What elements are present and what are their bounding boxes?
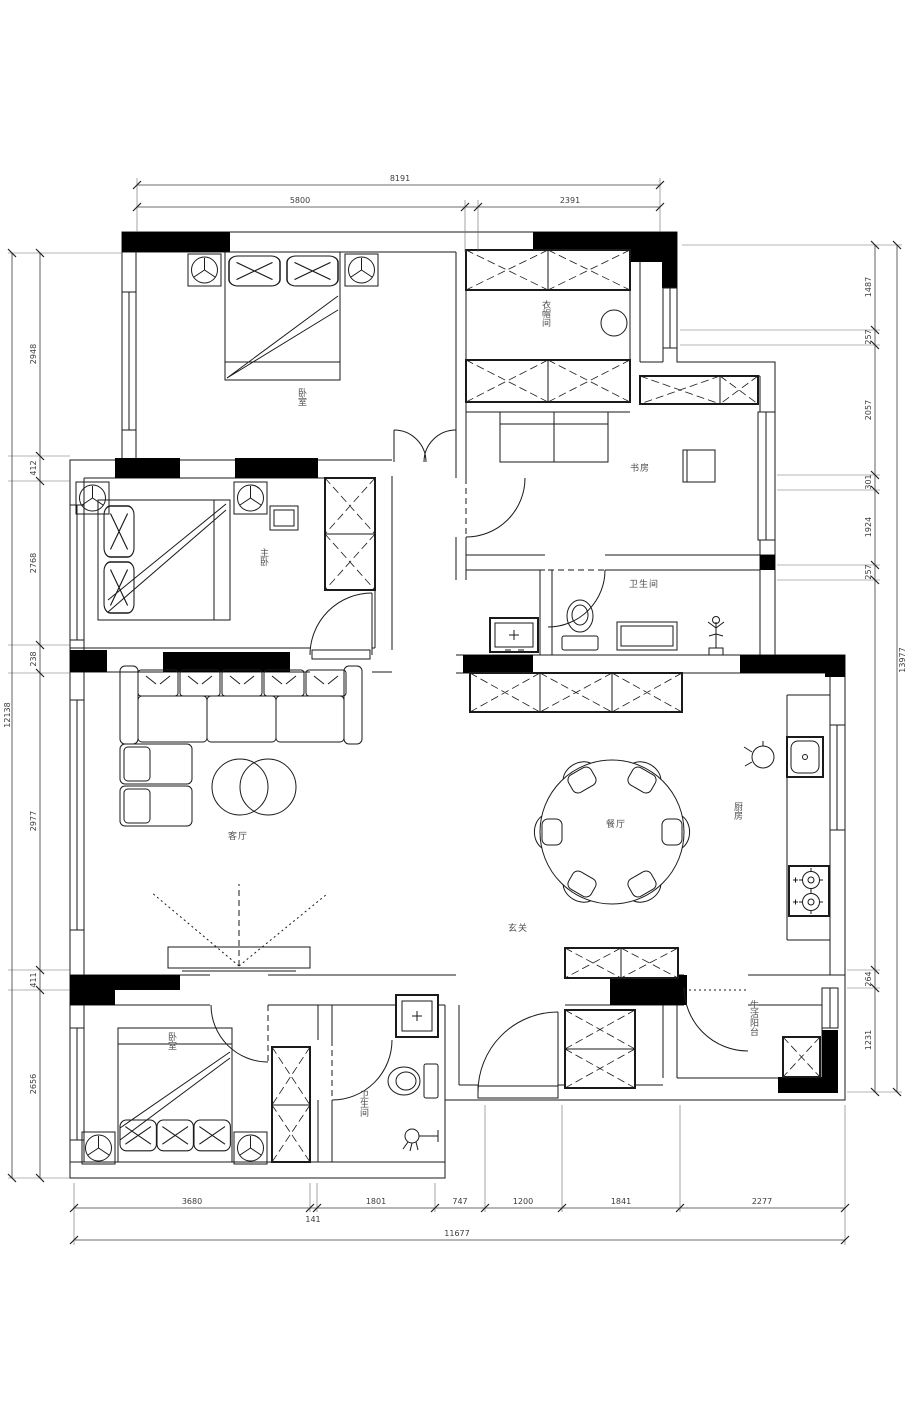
bathroom-mid-fixtures xyxy=(490,600,724,655)
sideboard xyxy=(470,673,682,712)
dining-room-furniture xyxy=(470,673,690,907)
kitchen-furniture xyxy=(744,695,830,940)
dim-text: 11677 xyxy=(444,1229,469,1238)
foyer-furniture xyxy=(565,948,678,1088)
door-entry xyxy=(478,1012,558,1098)
kitchen-sink xyxy=(787,737,823,777)
dim-text: 141 xyxy=(305,1215,320,1224)
dining-table xyxy=(534,757,689,907)
plant-icon xyxy=(708,617,724,656)
hall-cabinet xyxy=(565,1010,635,1088)
toilet xyxy=(562,600,598,650)
balcony-furniture xyxy=(783,1037,820,1077)
room-label-balcony: 生活阳台 xyxy=(747,1000,757,1036)
window-bedroom-top xyxy=(122,292,136,430)
window-living-room xyxy=(70,700,84,930)
nightstand-lamp-icon xyxy=(234,482,267,514)
wardrobe xyxy=(272,1047,310,1162)
tv-unit xyxy=(151,884,327,971)
room-label-bathroom-bottom: 卫生间 xyxy=(357,1090,367,1117)
cabinet xyxy=(617,622,677,650)
room-label-foyer: 玄关 xyxy=(508,925,528,935)
dim-text: 301 xyxy=(864,474,873,489)
room-label-bedroom-bottom: 卧室 xyxy=(165,1032,175,1050)
room-label-bathroom-mid: 卫生间 xyxy=(629,581,659,591)
double-door-bedroom-top xyxy=(394,430,456,462)
shower-head-icon xyxy=(403,1129,438,1151)
nightstand-lamp-icon xyxy=(234,1132,267,1164)
door-balcony xyxy=(684,987,748,1051)
door-master-bedroom xyxy=(310,593,372,655)
door-study xyxy=(466,478,525,537)
dim-text: 2768 xyxy=(29,553,38,573)
dim-text: 12138 xyxy=(3,702,12,727)
chaise-modules xyxy=(120,744,192,826)
vanity-sink xyxy=(490,618,538,652)
dim-text: 8191 xyxy=(390,174,410,183)
nightstand-lamp-icon xyxy=(82,1132,115,1164)
window-master-bedroom xyxy=(70,505,84,640)
washer-cabinet xyxy=(783,1037,820,1077)
nightstand-lamp-icon xyxy=(345,254,378,286)
dim-text: 2948 xyxy=(29,344,38,364)
dim-text: 747 xyxy=(452,1197,467,1206)
room-label-dining-room: 餐厅 xyxy=(606,821,626,831)
stove xyxy=(789,866,829,916)
dim-text: 411 xyxy=(29,972,38,987)
window-bedroom-bottom xyxy=(70,1028,84,1140)
master-bedroom-furniture xyxy=(76,478,375,620)
double-bed xyxy=(225,252,340,380)
shoe-cabinet xyxy=(565,948,678,978)
kettle-icon xyxy=(744,741,774,768)
dim-text: 1801 xyxy=(366,1197,386,1206)
room-label-living-room: 客厅 xyxy=(228,833,248,843)
window-study xyxy=(758,412,775,540)
toilet xyxy=(388,1064,438,1098)
stool xyxy=(601,310,627,336)
dim-text: 2277 xyxy=(752,1197,772,1206)
coffee-table xyxy=(212,759,296,815)
dimension-left: 2948 412 2768 238 2977 411 2656 12138 xyxy=(3,249,122,1182)
wardrobe xyxy=(466,360,630,402)
dim-text: 13977 xyxy=(898,647,907,672)
bathroom-bottom-fixtures xyxy=(388,995,438,1151)
dim-text: 1231 xyxy=(864,1030,873,1050)
bedroom-top-furniture xyxy=(188,252,378,380)
sofa xyxy=(120,666,362,744)
dim-text: 264 xyxy=(864,971,873,986)
room-label-kitchen: 厨房 xyxy=(731,802,741,820)
dimension-bottom: 3680 1801 747 1200 1841 2277 141 11677 xyxy=(70,1105,849,1245)
living-room-furniture xyxy=(120,666,362,971)
room-label-bedroom-top: 卧室 xyxy=(295,388,305,406)
bedroom-bottom-furniture xyxy=(82,1028,310,1164)
dim-text: 412 xyxy=(29,460,38,475)
dim-text: 238 xyxy=(29,651,38,666)
cabinet xyxy=(640,376,758,404)
dim-text: 257 xyxy=(864,329,873,344)
dim-text: 1924 xyxy=(864,517,873,537)
desk xyxy=(500,412,608,462)
dim-text: 3680 xyxy=(182,1197,202,1206)
room-label-master-bedroom: 主卧 xyxy=(257,548,267,566)
vanity-sink xyxy=(396,995,438,1037)
desk-chair xyxy=(683,450,715,482)
bench xyxy=(270,506,298,530)
dim-text: 2977 xyxy=(29,811,38,831)
wall-columns xyxy=(70,232,845,1093)
door-bathroom-mid xyxy=(548,570,605,627)
window-balcony xyxy=(822,988,838,1028)
dim-text: 1200 xyxy=(513,1197,533,1206)
wardrobe xyxy=(466,250,630,290)
nightstand-lamp-icon xyxy=(188,254,221,286)
dim-text: 2057 xyxy=(864,400,873,420)
window-cloakroom xyxy=(663,288,677,348)
dim-text: 2391 xyxy=(560,196,580,205)
dim-text: 1487 xyxy=(864,277,873,297)
wardrobe xyxy=(325,478,375,590)
dim-text: 1841 xyxy=(611,1197,631,1206)
window-kitchen xyxy=(830,725,845,830)
door-bedroom-bottom xyxy=(211,1005,268,1062)
dim-text: 2656 xyxy=(29,1074,38,1094)
double-bed xyxy=(98,500,230,620)
dim-text: 257 xyxy=(864,564,873,579)
floor-plan-canvas: 8191 5800 2391 3680 1801 747 1200 1841 2… xyxy=(0,0,921,1423)
exterior-walls xyxy=(70,232,845,1178)
room-label-cloakroom: 衣帽间 xyxy=(539,300,549,327)
windows xyxy=(70,288,845,1140)
floor-plan-drawing: 8191 5800 2391 3680 1801 747 1200 1841 2… xyxy=(0,0,921,1423)
room-label-study: 书房 xyxy=(630,465,650,475)
dim-text: 5800 xyxy=(290,196,310,205)
